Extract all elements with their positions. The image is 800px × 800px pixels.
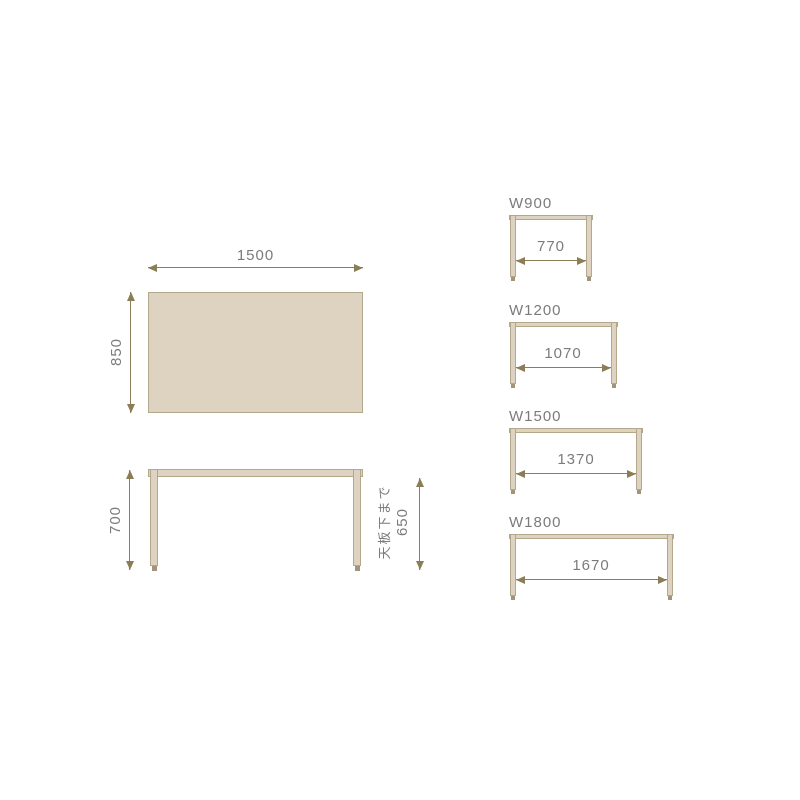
depth-dimension-arrow bbox=[130, 292, 131, 413]
under-tabletop-label-wrap: 天板下まで 650 bbox=[374, 482, 412, 562]
variant-w900-right-leg bbox=[586, 215, 592, 277]
variant-w1500-right-leg bbox=[636, 428, 642, 490]
variant-w1500-left-leg bbox=[510, 428, 516, 490]
variant-w1800-right-foot bbox=[668, 596, 672, 600]
variant-w1200-label: W1200 bbox=[509, 303, 579, 319]
variant-w1500-tabletop bbox=[509, 428, 643, 433]
variant-w1200-inner-width-arrow bbox=[516, 367, 611, 368]
left-foot-glide bbox=[152, 566, 157, 571]
under-tabletop-value: 650 bbox=[394, 508, 411, 536]
variant-w1500-inner-width-arrow bbox=[516, 473, 636, 474]
tabletop-front bbox=[148, 469, 363, 477]
variant-w1800-tabletop bbox=[509, 534, 674, 539]
height-dimension-label-wrap: 700 bbox=[106, 490, 126, 550]
variant-w900-right-foot bbox=[587, 277, 591, 281]
variant-w1800-right-leg bbox=[667, 534, 673, 596]
right-leg bbox=[353, 469, 361, 566]
left-leg bbox=[150, 469, 158, 566]
variant-w1500-label: W1500 bbox=[509, 409, 579, 425]
right-foot-glide bbox=[355, 566, 360, 571]
variant-w1200-tabletop bbox=[509, 322, 618, 327]
variant-w1800-left-foot bbox=[511, 596, 515, 600]
variant-w1200-inner-width-label: 1070 bbox=[533, 346, 593, 362]
variant-w900-label: W900 bbox=[509, 196, 579, 212]
width-dimension-arrow bbox=[148, 267, 363, 268]
height-dimension-label: 700 bbox=[108, 506, 124, 534]
variant-w1500-left-foot bbox=[511, 490, 515, 494]
depth-dimension-label-wrap: 850 bbox=[107, 322, 127, 382]
variant-w1500-right-foot bbox=[637, 490, 641, 494]
variant-w900-left-leg bbox=[510, 215, 516, 277]
variant-w1800-inner-width-label: 1670 bbox=[561, 558, 621, 574]
variant-w900-tabletop bbox=[509, 215, 593, 220]
variant-w900-inner-width-arrow bbox=[516, 260, 586, 261]
variant-w1800-inner-width-arrow bbox=[516, 579, 667, 580]
variant-w1500-inner-width-label: 1370 bbox=[546, 452, 606, 468]
height-dimension-arrow bbox=[129, 470, 130, 570]
table-dimension-diagram: 1500 850 700 天板下まで 650 W900 bbox=[0, 0, 800, 800]
variant-w1200-right-foot bbox=[612, 384, 616, 388]
tabletop-plan bbox=[148, 292, 363, 413]
under-tabletop-label-block: 天板下まで 650 bbox=[376, 485, 411, 560]
variant-w900-left-foot bbox=[511, 277, 515, 281]
variant-w900-inner-width-label: 770 bbox=[521, 239, 581, 255]
variant-w1800-label: W1800 bbox=[509, 515, 579, 531]
variant-w1200-left-leg bbox=[510, 322, 516, 384]
variant-w1200-left-foot bbox=[511, 384, 515, 388]
variant-w1800-left-leg bbox=[510, 534, 516, 596]
width-dimension-label: 1500 bbox=[225, 248, 286, 264]
under-tabletop-dimension-arrow bbox=[419, 478, 420, 570]
variant-w1200-right-leg bbox=[611, 322, 617, 384]
under-tabletop-note: 天板下まで bbox=[376, 485, 393, 560]
depth-dimension-label: 850 bbox=[109, 338, 125, 366]
